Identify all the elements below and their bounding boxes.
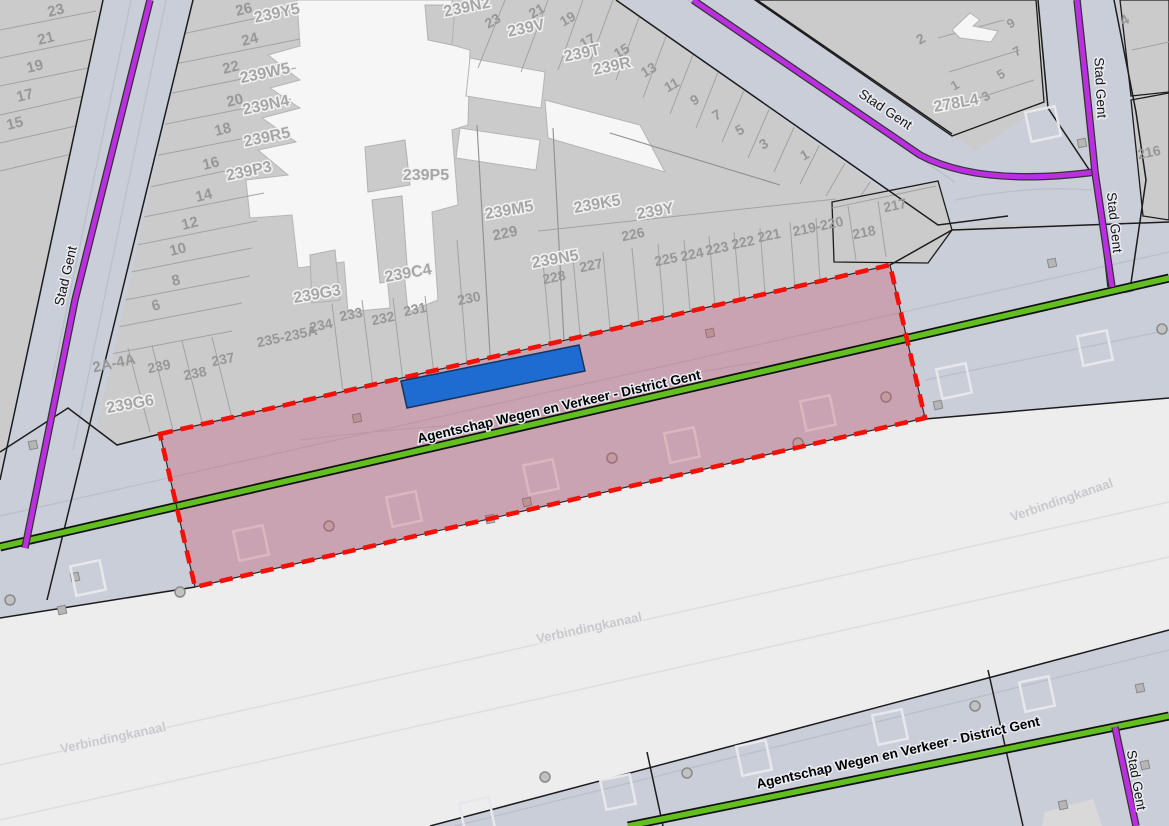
map-symbol-square-icon bbox=[1047, 258, 1056, 267]
map-symbol-square-icon bbox=[57, 605, 66, 614]
map-symbol-square-icon bbox=[933, 400, 942, 409]
map-symbol-circle-icon bbox=[175, 587, 185, 597]
map-symbol-circle-icon bbox=[540, 772, 550, 782]
map-symbol-circle-icon bbox=[5, 595, 15, 605]
map-symbol-square-icon bbox=[28, 440, 37, 449]
map-symbol-circle-icon bbox=[682, 768, 692, 778]
map-symbol-square-icon bbox=[1058, 800, 1067, 809]
map-symbol-circle-icon bbox=[1157, 324, 1167, 334]
parcel-code-label: 239P5 bbox=[403, 167, 449, 184]
road-name-label: Stad Gent bbox=[1091, 57, 1109, 119]
map-viewport[interactable]: 2321191715262422201816141210862321191715… bbox=[0, 0, 1169, 826]
map-symbol-square-icon bbox=[1135, 683, 1144, 692]
map-symbol-circle-icon bbox=[970, 701, 980, 711]
map-symbol-square-icon bbox=[1077, 138, 1086, 147]
